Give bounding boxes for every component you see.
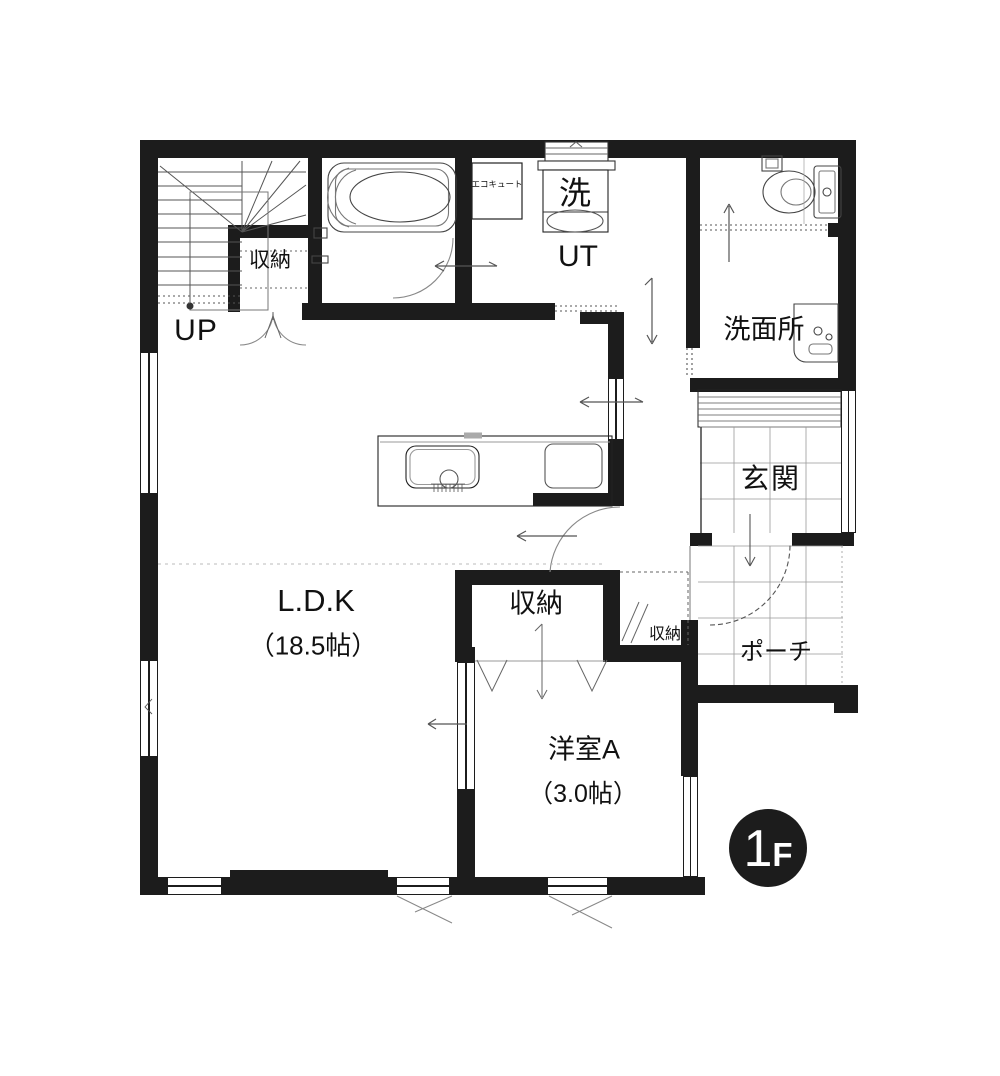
shoe-cabinet-icon — [698, 390, 841, 427]
wall-segment — [140, 755, 158, 895]
wall-segment — [608, 877, 705, 895]
window-pane-line — [148, 661, 150, 756]
wall-segment — [140, 492, 158, 662]
sliding-door — [457, 662, 475, 790]
wall-segment — [533, 493, 610, 506]
wall-segment — [690, 685, 858, 703]
wall-segment — [792, 533, 854, 546]
ecocute-icon — [472, 163, 522, 219]
door-line — [615, 379, 617, 439]
wall-segment — [455, 158, 472, 308]
window — [167, 877, 222, 895]
wall-segment — [690, 378, 856, 392]
floorplan-1f: UP 収納 エコキュート 洗 UT 洗面所 玄関 ポーチ L.D.K （18.5… — [0, 0, 1000, 1076]
door-line — [465, 663, 467, 789]
wall-segment — [457, 790, 475, 880]
entrance-label: 玄関 — [741, 457, 801, 497]
door-arc — [550, 507, 620, 572]
wall-segment — [580, 312, 624, 324]
window — [396, 877, 450, 895]
window-pane-line — [168, 885, 221, 887]
floor-badge-suffix: F — [772, 836, 792, 873]
wall-segment — [140, 140, 856, 158]
kitchen-sink-icon — [406, 446, 479, 488]
laundry-label: 洗 — [559, 168, 591, 214]
wall-segment — [140, 877, 167, 895]
ldk-name-label: L.D.K — [277, 583, 355, 619]
wall-segment — [828, 223, 838, 237]
sliding-door — [608, 378, 624, 440]
wall-segment — [302, 303, 555, 320]
porch-label: ポーチ — [740, 632, 812, 667]
wall-segment — [455, 647, 475, 662]
wall-segment — [690, 533, 712, 546]
window-pane-line — [848, 391, 850, 532]
wall-segment — [686, 158, 700, 348]
window — [683, 776, 698, 877]
window-pane-line — [548, 885, 607, 887]
window-pane-line — [397, 885, 449, 887]
wall-segment — [222, 877, 396, 895]
ecocute-label: エコキュート — [471, 178, 522, 190]
wall-segment — [230, 870, 388, 878]
wall-segment — [681, 620, 698, 776]
floor-badge-number: 1 — [743, 820, 772, 878]
closet-stairs-label: 収納 — [249, 244, 291, 274]
closet-small-label: 収納 — [649, 620, 681, 644]
window — [140, 352, 158, 494]
bathtub-icon — [312, 163, 456, 298]
wall-segment — [228, 225, 240, 312]
stove-icon — [545, 444, 602, 488]
wall-segment — [838, 140, 856, 392]
ldk-size-label: （18.5帖） — [249, 626, 378, 663]
wall-segment — [228, 225, 312, 238]
wall-segment — [603, 645, 693, 662]
stairs-up-label: UP — [174, 314, 218, 348]
window — [547, 877, 608, 895]
window — [140, 660, 158, 757]
wall-segment — [140, 140, 158, 354]
wall-segment — [834, 685, 858, 713]
utility-label: UT — [558, 240, 598, 274]
closet-center-label: 収納 — [509, 582, 563, 621]
wall-segment — [478, 877, 547, 895]
western-room-name-label: 洋室A — [548, 728, 620, 767]
toilet-icon — [762, 156, 841, 224]
window — [841, 390, 856, 533]
western-room-size-label: （3.0帖） — [528, 774, 638, 810]
bifold-door-icon — [475, 624, 607, 699]
floor-badge: 1F — [729, 809, 807, 887]
wall-segment — [608, 438, 624, 506]
window-pane-line — [690, 777, 692, 876]
washroom-label: 洗面所 — [724, 308, 805, 347]
window-swing-lines — [397, 896, 612, 928]
entrance-door-arc — [710, 514, 790, 625]
window-pane-line — [148, 353, 150, 493]
